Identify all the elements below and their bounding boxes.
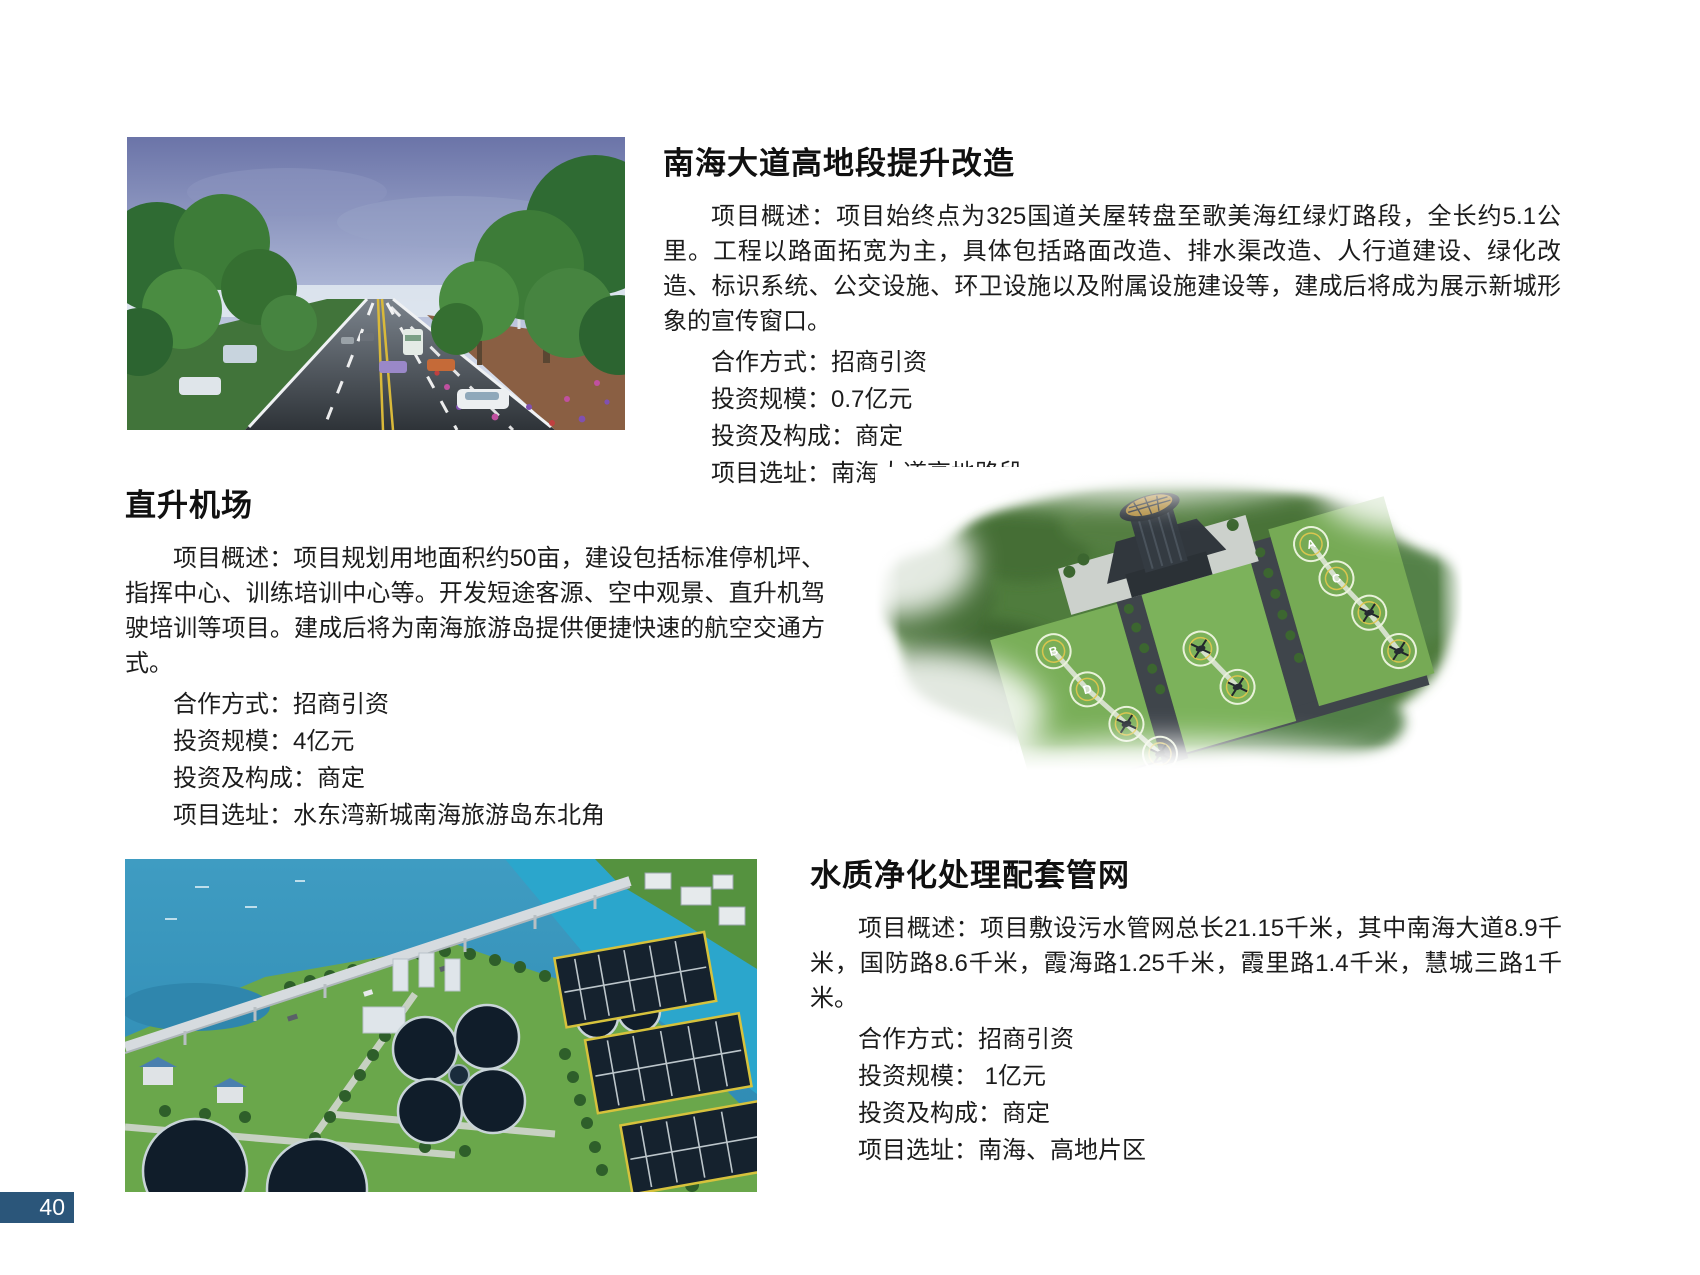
detail-project-site: 项目选址：南海、高地片区 — [858, 1132, 1562, 1169]
project-overview: 项目概述：项目始终点为325国道关屋转盘至歌美海红绿灯路段，全长约5.1公里。工… — [663, 199, 1561, 339]
detail-project-site: 项目选址：水东湾新城南海旅游岛东北角 — [173, 797, 825, 834]
detail-investment-composition: 投资及构成：商定 — [173, 760, 825, 797]
detail-investment-scale: 投资规模：0.7亿元 — [711, 381, 1561, 418]
detail-investment-scale: 投资规模： 1亿元 — [858, 1058, 1562, 1095]
project-details: 合作方式：招商引资 投资规模： 1亿元 投资及构成：商定 项目选址：南海、高地片… — [858, 1021, 1562, 1169]
project-overview: 项目概述：项目敷设污水管网总长21.15千米，其中南海大道8.9千米，国防路8.… — [810, 911, 1562, 1016]
detail-cooperation-mode: 合作方式：招商引资 — [711, 344, 1561, 381]
heliport-aerial-illustration: BD AC — [875, 467, 1463, 770]
detail-cooperation-mode: 合作方式：招商引资 — [173, 686, 825, 723]
project-overview: 项目概述：项目规划用地面积约50亩，建设包括标准停机坪、指挥中心、训练培训中心等… — [125, 541, 825, 681]
water-treatment-plant-photo — [125, 859, 757, 1192]
detail-cooperation-mode: 合作方式：招商引资 — [858, 1021, 1562, 1058]
section-title: 水质净化处理配套管网 — [810, 850, 1562, 895]
page-number-badge: 40 — [0, 1192, 74, 1223]
detail-investment-composition: 投资及构成：商定 — [858, 1095, 1562, 1132]
water-treatment-plant-illustration — [125, 859, 757, 1192]
section-title: 直升机场 — [125, 480, 825, 525]
tree-lined-road-illustration — [127, 137, 625, 430]
project-text-heliport: 直升机场 项目概述：项目规划用地面积约50亩，建设包括标准停机坪、指挥中心、训练… — [125, 480, 825, 834]
project-details: 合作方式：招商引资 投资规模：4亿元 投资及构成：商定 项目选址：水东湾新城南海… — [173, 686, 825, 834]
heliport-photo: BD AC — [875, 467, 1463, 770]
page-number: 40 — [39, 1196, 65, 1219]
detail-investment-composition: 投资及构成：商定 — [711, 418, 1561, 455]
section-title: 南海大道高地段提升改造 — [663, 138, 1561, 183]
page: 南海大道高地段提升改造 项目概述：项目始终点为325国道关屋转盘至歌美海红绿灯路… — [0, 0, 1700, 1275]
project-text-pipe-network: 水质净化处理配套管网 项目概述：项目敷设污水管网总长21.15千米，其中南海大道… — [810, 850, 1562, 1169]
detail-investment-scale: 投资规模：4亿元 — [173, 723, 825, 760]
project-text-nanhai-road: 南海大道高地段提升改造 项目概述：项目始终点为325国道关屋转盘至歌美海红绿灯路… — [663, 138, 1561, 492]
road-photo — [127, 137, 625, 430]
